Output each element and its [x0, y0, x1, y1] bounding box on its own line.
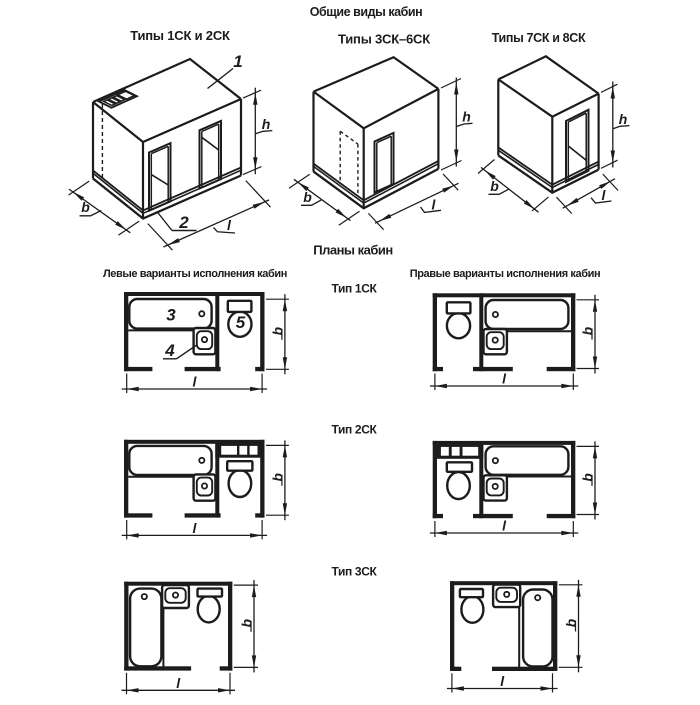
svg-text:Правые варианты исполнения каб: Правые варианты исполнения кабин [410, 268, 601, 280]
svg-text:l: l [602, 187, 607, 203]
svg-text:Тип 1СК: Тип 1СК [331, 282, 377, 296]
svg-text:l: l [432, 197, 437, 213]
svg-text:Планы кабин: Планы кабин [313, 243, 393, 258]
svg-text:b: b [579, 326, 595, 335]
svg-text:l: l [227, 217, 232, 233]
svg-text:5: 5 [236, 313, 246, 332]
svg-text:h: h [262, 116, 271, 132]
svg-text:b: b [490, 178, 499, 194]
svg-text:Типы 3СК–6СК: Типы 3СК–6СК [338, 32, 430, 47]
svg-text:b: b [579, 473, 595, 482]
svg-text:Типы 7СК и 8СК: Типы 7СК и 8СК [492, 31, 586, 45]
svg-text:b: b [81, 199, 90, 215]
svg-text:Общие виды кабин: Общие виды кабин [310, 5, 423, 19]
svg-text:l: l [500, 673, 505, 689]
svg-text:Типы 1СК и 2СК: Типы 1СК и 2СК [130, 28, 230, 43]
svg-text:b: b [238, 619, 254, 628]
svg-text:b: b [303, 189, 312, 205]
svg-text:b: b [563, 618, 579, 627]
svg-text:Тип 3СК: Тип 3СК [331, 565, 377, 579]
svg-text:h: h [462, 109, 471, 125]
svg-text:3: 3 [166, 306, 176, 325]
svg-text:b: b [269, 327, 285, 336]
svg-text:Левые варианты исполнения каби: Левые варианты исполнения кабин [103, 268, 287, 280]
svg-text:4: 4 [164, 341, 175, 360]
svg-text:1: 1 [233, 52, 242, 71]
svg-text:2: 2 [178, 213, 189, 232]
svg-text:l: l [176, 675, 181, 691]
svg-text:l: l [502, 371, 507, 387]
svg-text:b: b [269, 473, 285, 482]
svg-text:l: l [192, 374, 197, 390]
svg-text:Тип 2СК: Тип 2СК [331, 423, 377, 437]
svg-text:l: l [192, 520, 197, 536]
svg-text:h: h [619, 111, 628, 127]
svg-text:l: l [502, 518, 507, 534]
